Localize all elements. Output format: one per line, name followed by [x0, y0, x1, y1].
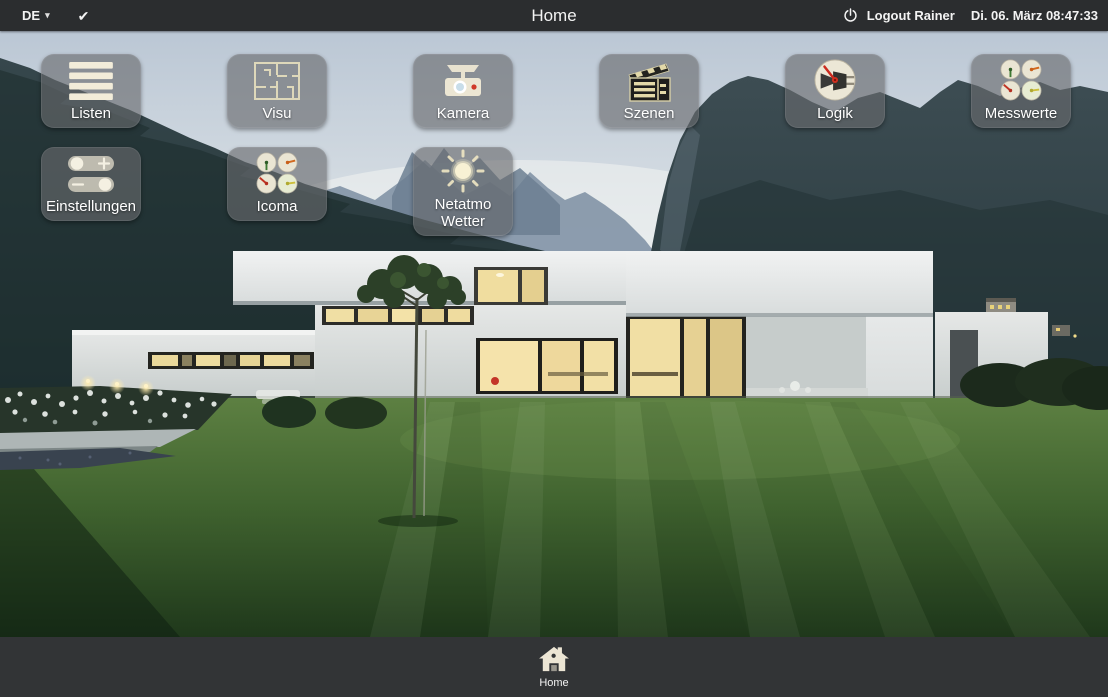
bottombar: Home: [0, 637, 1108, 697]
nav-home[interactable]: Home: [537, 645, 571, 689]
tile-listen[interactable]: Listen: [41, 54, 141, 128]
datetime: Di. 06. März 08:47:33: [971, 8, 1098, 23]
tile-kamera[interactable]: Kamera: [413, 54, 513, 128]
topbar: DE ▾ ✔ Home Logout Rainer Di. 06. März 0…: [0, 0, 1108, 31]
logic-gauge-icon: [813, 58, 857, 102]
sliders-icon: [66, 154, 116, 195]
sun-icon: [441, 149, 485, 193]
tile-label: Szenen: [624, 105, 675, 122]
logout-button[interactable]: Logout Rainer: [867, 8, 955, 23]
tile-einstellungen[interactable]: Einstellungen: [41, 147, 141, 221]
tile-netatmo-wetter[interactable]: Netatmo Wetter: [413, 147, 513, 236]
tile-label: Netatmo Wetter: [426, 196, 500, 231]
tile-messwerte[interactable]: Messwerte: [971, 54, 1071, 128]
confirm-button[interactable]: ✔: [78, 9, 90, 23]
floorplan-icon: [254, 61, 300, 102]
power-icon[interactable]: [843, 8, 858, 23]
camera-icon: [440, 61, 486, 102]
tile-logik[interactable]: Logik: [785, 54, 885, 128]
gauges-icon: [999, 58, 1043, 102]
checkmark-icon: ✔: [78, 8, 90, 24]
home-icon: [537, 645, 571, 676]
home-label: Home: [539, 677, 568, 689]
tile-label: Visu: [263, 105, 292, 122]
tile-label: Logik: [817, 105, 853, 122]
tile-label: Kamera: [437, 105, 490, 122]
background-photo: [0, 0, 1108, 697]
tile-icoma[interactable]: Icoma: [227, 147, 327, 221]
language-label: DE: [22, 8, 40, 23]
tile-label: Messwerte: [985, 105, 1058, 122]
tile-visu[interactable]: Visu: [227, 54, 327, 128]
clapperboard-icon: [626, 58, 672, 102]
gauges-icon: [255, 151, 299, 195]
tile-label: Icoma: [257, 198, 298, 215]
language-select[interactable]: DE ▾: [22, 8, 50, 23]
tile-label: Einstellungen: [46, 198, 136, 215]
caret-down-icon: ▾: [45, 11, 50, 20]
topbar-right: Logout Rainer Di. 06. März 08:47:33: [843, 8, 1098, 23]
smart-home-app: DE ▾ ✔ Home Logout Rainer Di. 06. März 0…: [0, 0, 1108, 697]
tile-label: Listen: [71, 105, 111, 122]
tile-szenen[interactable]: Szenen: [599, 54, 699, 128]
list-icon: [68, 61, 114, 102]
